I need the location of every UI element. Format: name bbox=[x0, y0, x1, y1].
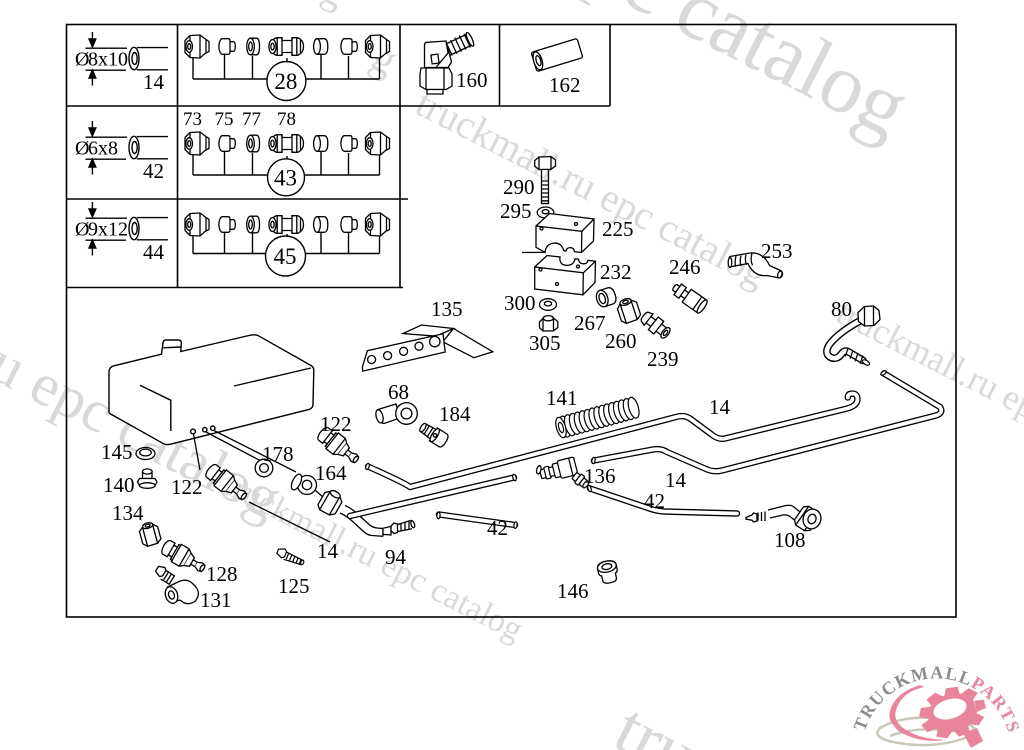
svg-text:267: 267 bbox=[574, 311, 606, 335]
svg-text:14: 14 bbox=[317, 539, 339, 563]
svg-text:140: 140 bbox=[103, 473, 135, 497]
svg-text:42: 42 bbox=[143, 159, 164, 183]
svg-text:260: 260 bbox=[605, 329, 637, 353]
svg-text:160: 160 bbox=[456, 68, 488, 92]
svg-text:14: 14 bbox=[709, 395, 731, 419]
svg-text:108: 108 bbox=[774, 528, 806, 552]
svg-text:75: 75 bbox=[215, 109, 234, 130]
svg-text:135: 135 bbox=[431, 297, 463, 321]
svg-text:6x8: 6x8 bbox=[88, 138, 118, 160]
svg-text:28: 28 bbox=[274, 69, 297, 94]
svg-text:44: 44 bbox=[143, 240, 165, 264]
svg-text:94: 94 bbox=[385, 545, 407, 569]
svg-text:131: 131 bbox=[200, 588, 232, 612]
svg-text:141: 141 bbox=[546, 386, 578, 410]
svg-text:232: 232 bbox=[600, 260, 632, 284]
svg-text:122: 122 bbox=[171, 475, 203, 499]
svg-text:164: 164 bbox=[315, 461, 347, 485]
svg-text:45: 45 bbox=[274, 244, 297, 269]
svg-text:300: 300 bbox=[504, 291, 536, 315]
svg-text:295: 295 bbox=[500, 199, 532, 223]
svg-text:246: 246 bbox=[669, 255, 701, 279]
svg-text:43: 43 bbox=[274, 165, 297, 190]
svg-text:73: 73 bbox=[183, 109, 202, 130]
svg-text:68: 68 bbox=[388, 380, 409, 404]
svg-text:78: 78 bbox=[277, 109, 296, 130]
svg-text:8x10: 8x10 bbox=[88, 49, 128, 71]
svg-text:290: 290 bbox=[503, 175, 535, 199]
svg-text:128: 128 bbox=[206, 562, 238, 586]
svg-text:125: 125 bbox=[278, 574, 310, 598]
svg-text:14: 14 bbox=[665, 468, 687, 492]
svg-text:305: 305 bbox=[529, 331, 561, 355]
svg-text:178: 178 bbox=[262, 442, 294, 466]
svg-text:80: 80 bbox=[831, 297, 852, 321]
svg-text:14: 14 bbox=[143, 70, 165, 94]
svg-text:42: 42 bbox=[644, 489, 665, 513]
svg-text:77: 77 bbox=[242, 109, 261, 130]
svg-text:146: 146 bbox=[557, 579, 589, 603]
svg-text:122: 122 bbox=[320, 412, 352, 436]
svg-text:145: 145 bbox=[101, 440, 133, 464]
svg-text:184: 184 bbox=[439, 402, 471, 426]
svg-text:9x12: 9x12 bbox=[88, 219, 128, 241]
svg-text:136: 136 bbox=[584, 464, 616, 488]
svg-text:225: 225 bbox=[602, 217, 634, 241]
svg-text:253: 253 bbox=[761, 239, 793, 263]
svg-text:42: 42 bbox=[487, 516, 508, 540]
svg-text:134: 134 bbox=[112, 501, 144, 525]
svg-text:162: 162 bbox=[549, 73, 581, 97]
svg-text:239: 239 bbox=[647, 347, 679, 371]
